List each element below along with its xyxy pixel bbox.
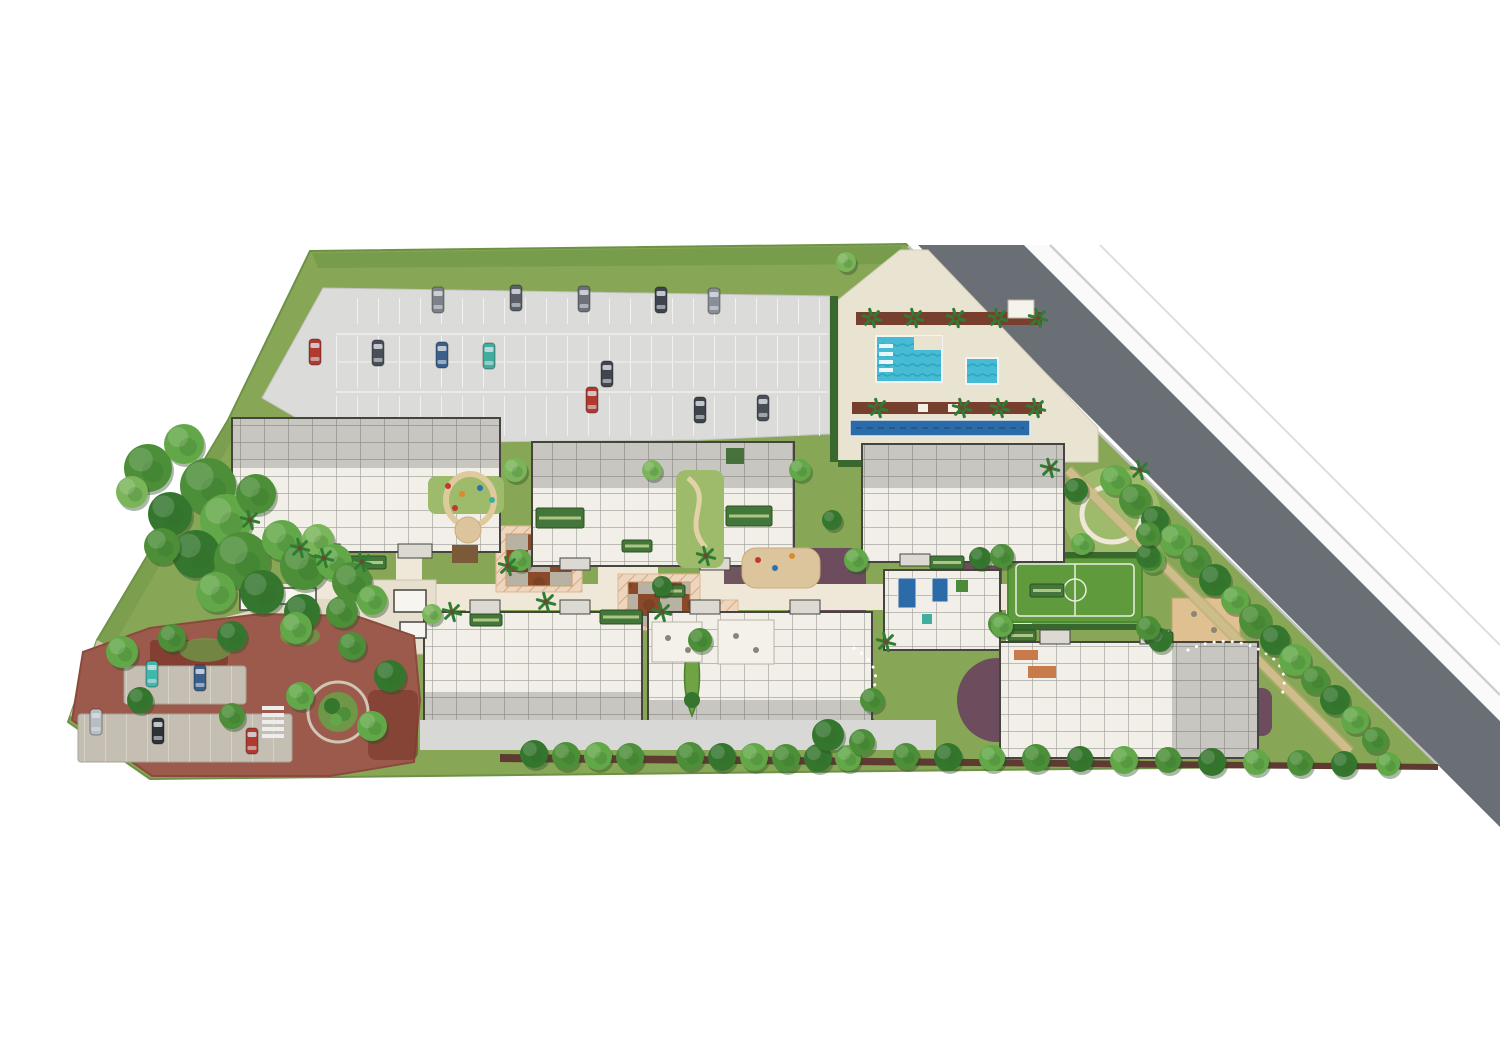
bush <box>330 714 342 726</box>
car-body <box>708 288 720 314</box>
tree-highlight <box>240 477 260 497</box>
car-rear-window <box>657 305 666 309</box>
garden-sign <box>470 614 502 626</box>
lounge-furniture <box>1014 650 1038 660</box>
tree-highlight <box>862 690 874 702</box>
tree-highlight <box>1263 627 1278 642</box>
palm-trunk <box>660 610 665 615</box>
tree-highlight <box>220 536 248 564</box>
entrance-core <box>470 600 500 614</box>
palm-trunk <box>298 546 303 551</box>
gatehouse <box>394 590 426 612</box>
sign-text-hint <box>539 517 581 520</box>
tree-highlight <box>119 478 135 494</box>
wood-deck-table <box>452 545 478 563</box>
tree-highlight <box>1025 746 1039 760</box>
tree-highlight <box>824 512 834 522</box>
car-windshield <box>196 669 205 674</box>
entrance-core <box>690 600 720 614</box>
tree-highlight <box>168 427 188 447</box>
palm-trunk <box>544 600 549 605</box>
car-windshield <box>92 713 101 718</box>
palm-trunk <box>1034 406 1039 411</box>
crosswalk-stripe <box>262 720 284 724</box>
sign-text-hint <box>473 619 499 622</box>
car-body <box>432 287 444 313</box>
tree-highlight <box>1242 606 1258 622</box>
car-body <box>483 343 495 369</box>
gravel-stalls <box>78 714 292 762</box>
spa-sq <box>922 614 932 624</box>
car-windshield <box>657 291 666 296</box>
tree-highlight <box>846 550 858 562</box>
building-b-room-walls <box>532 442 794 566</box>
palm-trunk <box>996 316 1001 321</box>
tree-highlight <box>1365 729 1378 742</box>
entrance-core <box>1040 630 1070 644</box>
tree-highlight <box>148 531 166 549</box>
car-windshield <box>438 346 447 351</box>
patio-furniture <box>753 647 759 653</box>
garden-sign <box>930 556 964 569</box>
entrance-core <box>790 600 820 614</box>
garden-sign <box>600 610 642 624</box>
tree-highlight <box>937 745 951 759</box>
car-body <box>578 286 590 312</box>
tree-highlight <box>1103 467 1118 482</box>
tree-highlight <box>505 460 517 472</box>
tree-highlight <box>1224 588 1238 602</box>
car-windshield <box>512 289 521 294</box>
car-body <box>194 665 206 691</box>
car <box>655 287 667 313</box>
car-body <box>372 340 384 366</box>
sand-circle <box>455 517 481 543</box>
crosswalk-stripe <box>262 713 284 717</box>
car-rear-window <box>710 306 719 310</box>
tree-highlight <box>305 526 321 542</box>
crosswalk-stripe <box>262 706 284 710</box>
tree-highlight <box>644 462 654 472</box>
car-rear-window <box>248 746 257 750</box>
palm-trunk <box>450 610 455 615</box>
tree-highlight <box>1202 566 1218 582</box>
hedge-strip <box>830 296 838 462</box>
tree-highlight <box>1290 752 1303 765</box>
entrance-core <box>560 600 590 614</box>
sand-playground <box>742 548 820 588</box>
car-windshield <box>580 290 589 295</box>
palm-trunk <box>1048 466 1053 471</box>
entrance-core <box>900 554 930 566</box>
tree-highlight <box>815 721 831 737</box>
palm-trunk <box>960 406 965 411</box>
car-rear-window <box>759 413 768 417</box>
tree-highlight <box>1066 480 1078 492</box>
sign-text-hint <box>1033 589 1061 592</box>
car-rear-window <box>438 360 447 364</box>
tree-highlight <box>587 744 601 758</box>
lounger <box>918 404 928 412</box>
car-windshield <box>710 292 719 297</box>
tree-highlight <box>1138 618 1150 630</box>
tree-highlight <box>1282 646 1298 662</box>
car <box>586 387 598 413</box>
car-windshield <box>148 665 157 670</box>
tree-highlight <box>424 606 434 616</box>
palm-trunk <box>998 406 1003 411</box>
tree-highlight <box>1162 526 1178 542</box>
car-windshield <box>485 347 494 352</box>
sign-text-hint <box>1011 634 1033 637</box>
patio-furniture <box>733 633 739 639</box>
tree-highlight <box>1138 524 1150 536</box>
pool-step <box>879 368 893 372</box>
car-rear-window <box>485 361 494 365</box>
tree-highlight <box>690 630 702 642</box>
garden-sign <box>1030 584 1064 597</box>
car <box>309 339 321 365</box>
sign-text-hint <box>603 616 639 619</box>
tree-highlight <box>654 578 664 588</box>
play-equipment <box>459 491 465 497</box>
palm-trunk <box>704 554 709 559</box>
tree-highlight <box>743 745 757 759</box>
tree-highlight <box>679 744 693 758</box>
tree-highlight <box>130 689 143 702</box>
tree-highlight <box>775 746 789 760</box>
play-equipment <box>477 485 483 491</box>
car-body <box>152 718 164 744</box>
tree-highlight <box>129 448 153 472</box>
car-windshield <box>759 399 768 404</box>
lounge-furniture <box>1028 666 1056 678</box>
tree-highlight <box>186 462 214 490</box>
amenity-patio <box>718 620 774 664</box>
car <box>194 665 206 691</box>
tree-highlight <box>838 254 848 264</box>
car <box>246 728 258 754</box>
pool-step <box>879 344 893 348</box>
tree-highlight <box>619 745 633 759</box>
car-windshield <box>588 391 597 396</box>
tree-highlight <box>377 662 393 678</box>
tree-highlight <box>711 745 725 759</box>
car-body <box>90 709 102 735</box>
crosswalk-stripe <box>262 727 284 731</box>
green-sq <box>956 580 968 592</box>
palm-trunk <box>1138 468 1143 473</box>
indoor-pool <box>898 578 916 608</box>
car <box>601 361 613 387</box>
sign-text-hint <box>729 515 769 518</box>
tree-highlight <box>1246 751 1259 764</box>
car-rear-window <box>92 727 101 731</box>
tree-highlight <box>896 745 909 758</box>
tree-highlight <box>109 638 125 654</box>
car <box>694 397 706 423</box>
car-rear-window <box>196 683 205 687</box>
building-d <box>424 612 642 726</box>
field-hedge <box>1004 624 1146 630</box>
indoor-pool <box>932 578 948 602</box>
palm-trunk <box>876 406 881 411</box>
patio-furniture <box>1211 627 1217 633</box>
car <box>432 287 444 313</box>
patio-furniture <box>1191 611 1197 617</box>
palm-trunk <box>248 518 253 523</box>
entrance-core <box>398 544 432 558</box>
patio-furniture <box>665 635 671 641</box>
tree-highlight <box>341 634 355 648</box>
car-body <box>586 387 598 413</box>
tree-highlight <box>244 573 266 595</box>
tree-highlight <box>205 498 231 524</box>
car-body <box>757 395 769 421</box>
palm-trunk <box>322 556 327 561</box>
play-equipment <box>789 553 795 559</box>
tree-highlight <box>220 623 235 638</box>
tree-highlight <box>1070 748 1083 761</box>
tree-highlight <box>993 617 1004 628</box>
entrance-core <box>560 558 590 570</box>
patio-furniture <box>685 647 691 653</box>
hedge-square <box>726 448 744 464</box>
palm-trunk <box>884 640 889 645</box>
car-rear-window <box>311 357 320 361</box>
play-equipment <box>755 557 761 563</box>
crosswalk-stripe <box>262 734 284 738</box>
car-windshield <box>603 365 612 370</box>
car-rear-window <box>696 415 705 419</box>
garden-sign <box>726 506 772 526</box>
car-body <box>246 728 258 754</box>
building-f <box>1000 642 1258 758</box>
tree-highlight <box>982 747 995 760</box>
car <box>483 343 495 369</box>
building-c <box>862 444 1064 562</box>
kids-pool <box>966 358 998 384</box>
car-body <box>146 661 158 687</box>
car-body <box>655 287 667 313</box>
tree-highlight <box>360 713 375 728</box>
palm-trunk <box>870 316 875 321</box>
palm-trunk <box>912 316 917 321</box>
garden-sign <box>622 540 652 552</box>
car <box>510 285 522 311</box>
tree-highlight <box>1304 668 1318 682</box>
tree-highlight <box>1323 687 1338 702</box>
car-rear-window <box>374 358 383 362</box>
tree-highlight <box>1334 753 1347 766</box>
building-b <box>532 442 794 566</box>
garden-sign <box>536 508 584 528</box>
tree-highlight <box>1344 708 1358 722</box>
tree-highlight <box>1158 749 1171 762</box>
car-rear-window <box>434 305 443 309</box>
tree-highlight <box>523 742 537 756</box>
car <box>708 288 720 314</box>
sports-field <box>1004 552 1146 630</box>
pool-deck-notch <box>914 336 942 350</box>
pool-step <box>879 352 893 356</box>
tree-highlight <box>1073 535 1084 546</box>
car <box>757 395 769 421</box>
tree-highlight <box>1122 486 1138 502</box>
tree-highlight <box>1183 547 1198 562</box>
tree-highlight <box>555 744 569 758</box>
tree-highlight <box>222 705 235 718</box>
car-windshield <box>374 344 383 349</box>
car <box>372 340 384 366</box>
car-windshield <box>248 732 257 737</box>
car-body <box>436 342 448 368</box>
tree-highlight <box>161 626 175 640</box>
palm-trunk <box>506 564 511 569</box>
play-equipment <box>452 505 458 511</box>
palm-trunk <box>360 560 365 565</box>
palm-trunk <box>954 316 959 321</box>
tree-highlight <box>200 575 220 595</box>
car-windshield <box>154 722 163 727</box>
building-f-room-walls <box>1000 642 1258 758</box>
tree-highlight <box>152 495 174 517</box>
tree-highlight <box>791 461 802 472</box>
tree-highlight <box>336 565 356 585</box>
car-rear-window <box>512 303 521 307</box>
car-windshield <box>696 401 705 406</box>
sign-text-hint <box>625 545 649 548</box>
car-windshield <box>434 291 443 296</box>
car-rear-window <box>580 304 589 308</box>
sign-text-hint <box>933 561 961 564</box>
car <box>436 342 448 368</box>
car-body <box>309 339 321 365</box>
car-body <box>601 361 613 387</box>
tree-highlight <box>992 546 1004 558</box>
tree-highlight <box>360 587 375 602</box>
car-rear-window <box>603 379 612 383</box>
car-rear-window <box>588 405 597 409</box>
car-rear-window <box>148 679 157 683</box>
tree-highlight <box>288 597 306 615</box>
site-plan-illustration <box>0 0 1500 1050</box>
car <box>146 661 158 687</box>
play-equipment <box>489 497 495 503</box>
car-rear-window <box>154 736 163 740</box>
pool-step <box>879 360 893 364</box>
palm-trunk <box>1036 316 1041 321</box>
car <box>152 718 164 744</box>
tree-highlight <box>266 523 286 543</box>
car-body <box>510 285 522 311</box>
tree-highlight <box>1144 508 1158 522</box>
building-d-room-walls <box>424 612 642 726</box>
car-windshield <box>311 343 320 348</box>
tree-highlight <box>1113 748 1127 762</box>
play-equipment <box>445 483 451 489</box>
tree-highlight <box>971 549 982 560</box>
tree-highlight <box>852 731 865 744</box>
tree-highlight <box>1201 750 1215 764</box>
site-plan-page <box>0 0 1500 1050</box>
tree-highlight <box>329 598 345 614</box>
tree-highlight <box>283 614 299 630</box>
car-body <box>694 397 706 423</box>
tree-highlight <box>289 684 303 698</box>
car <box>578 286 590 312</box>
bush <box>684 692 700 708</box>
play-equipment <box>772 565 778 571</box>
building-c-room-walls <box>862 444 1064 562</box>
car <box>90 709 102 735</box>
